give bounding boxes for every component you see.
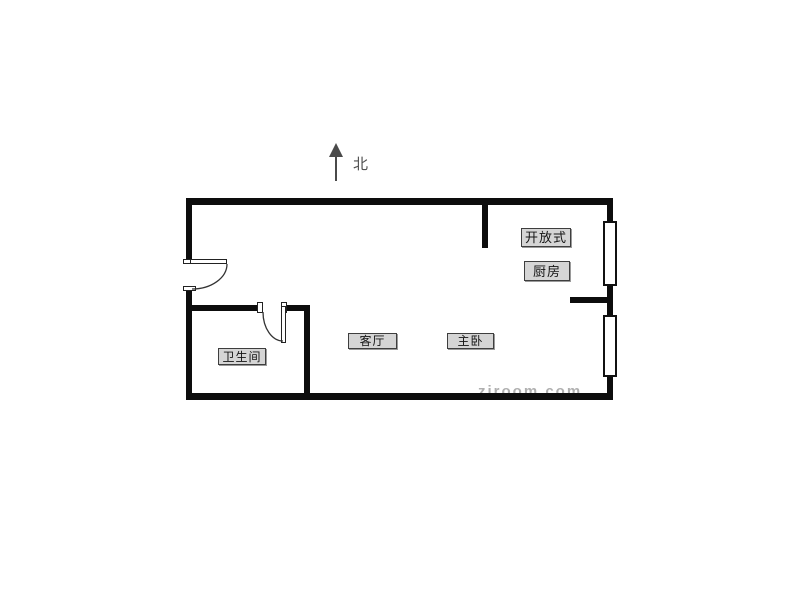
- wall-left-upper: [186, 198, 192, 261]
- room-label-master-bedroom: 主卧: [447, 333, 494, 349]
- room-label-bathroom: 卫生间: [218, 348, 266, 365]
- north-label: 北: [353, 153, 368, 174]
- bathroom-door-panel: [281, 306, 286, 343]
- wall-bathroom-right: [304, 305, 310, 400]
- wall-kitchen-partition: [482, 205, 488, 248]
- room-label-living-room: 客厅: [348, 333, 397, 349]
- door-swing-arcs: [0, 0, 800, 600]
- wall-kitchen-bedroom-divider: [570, 297, 610, 303]
- room-label-kitchen-line2: 厨房: [524, 261, 570, 281]
- master-bedroom-label-text: 主卧: [457, 335, 483, 347]
- bathroom-label-text: 卫生间: [222, 351, 261, 363]
- north-arrow-shaft: [335, 155, 337, 181]
- entry-door-panel: [190, 259, 227, 264]
- window-right-lower: [603, 315, 617, 377]
- wall-bathroom-top-left: [192, 305, 258, 311]
- entry-door-swing-arc: [192, 264, 227, 289]
- kitchen-label-text-1: 开放式: [525, 231, 567, 244]
- bathroom-door-swing-arc: [263, 312, 283, 341]
- wall-top: [186, 198, 613, 205]
- window-right-upper: [603, 221, 617, 286]
- living-room-label-text: 客厅: [359, 335, 385, 347]
- entry-door-jamb-bottom: [183, 286, 196, 291]
- floor-plan-canvas: 北 ziroom.com 开放式 厨房 卫生间 客厅 主卧: [0, 0, 800, 600]
- wall-right-lower: [607, 376, 613, 400]
- bathroom-door-jamb-left: [257, 302, 263, 313]
- room-label-kitchen-line1: 开放式: [521, 228, 571, 247]
- kitchen-label-text-2: 厨房: [533, 265, 561, 278]
- wall-bottom: [186, 393, 613, 400]
